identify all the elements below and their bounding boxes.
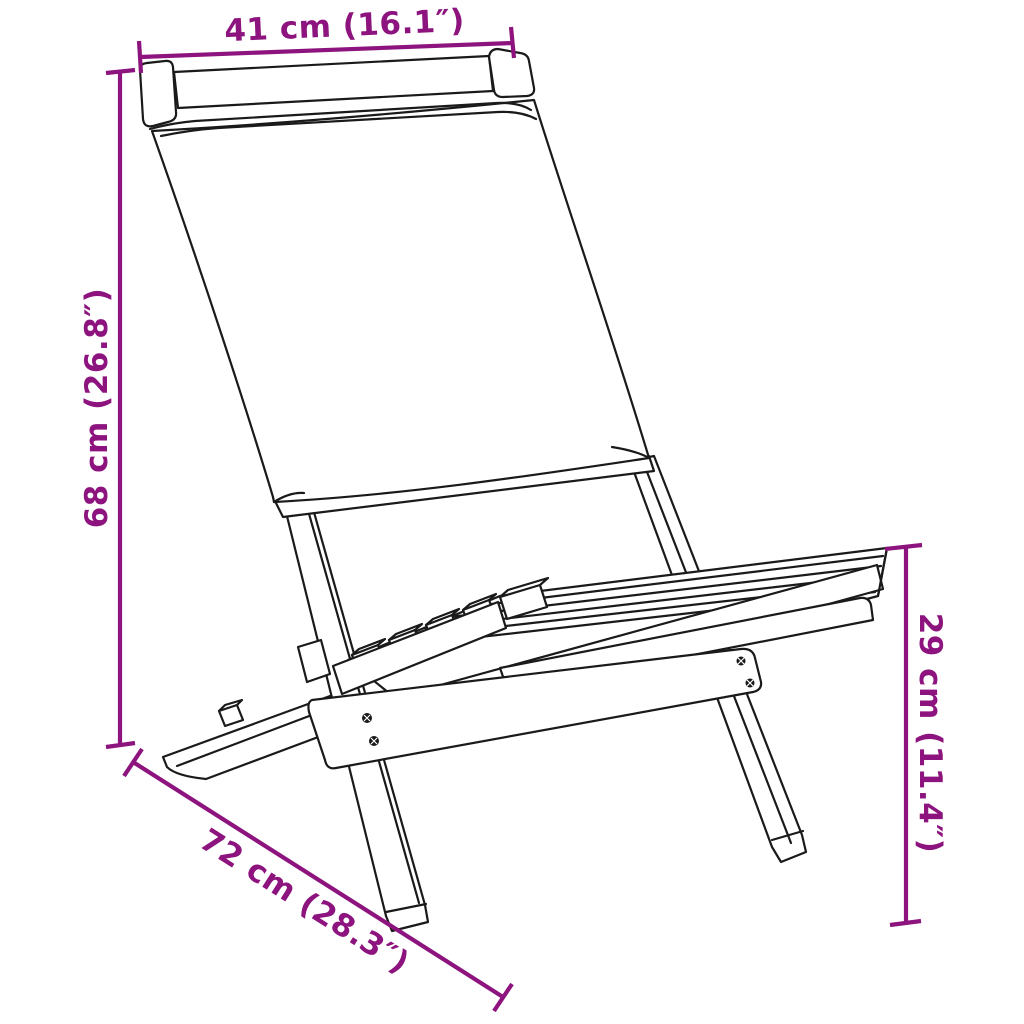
chair-drawing <box>140 49 887 931</box>
dimension-seat-height: 29 cm (11.4″) <box>885 545 948 925</box>
dimension-line <box>133 762 503 997</box>
dimension-tick <box>511 27 514 58</box>
dimension-tick <box>890 921 921 925</box>
dimension-label-height: 68 cm (26.8″) <box>79 288 115 529</box>
dimension-tick <box>139 41 141 73</box>
dimension-line <box>140 43 513 57</box>
dimension-height: 68 cm (26.8″) <box>79 70 135 747</box>
chair-top-rail-left-cap <box>140 61 176 126</box>
dimension-tick <box>106 743 135 747</box>
dimension-tick <box>106 70 135 73</box>
dimension-tick <box>494 984 512 1011</box>
dimension-label-width: 41 cm (16.1″) <box>224 3 466 49</box>
dimension-tick <box>885 545 922 549</box>
dimension-tick <box>124 749 142 776</box>
dimension-depth: 72 cm (28.3″) <box>124 749 512 1011</box>
chair-back-fabric <box>152 100 649 502</box>
chair-top-rail <box>174 56 493 108</box>
chair-top-rail-right-cap <box>489 49 534 97</box>
dimension-diagram: 41 cm (16.1″) 68 cm (26.8″) 29 cm (11.4″… <box>0 0 1024 1024</box>
chair-dimension-drawing: 41 cm (16.1″) 68 cm (26.8″) 29 cm (11.4″… <box>0 0 1024 1024</box>
dimension-label-seat-height: 29 cm (11.4″) <box>912 613 948 854</box>
